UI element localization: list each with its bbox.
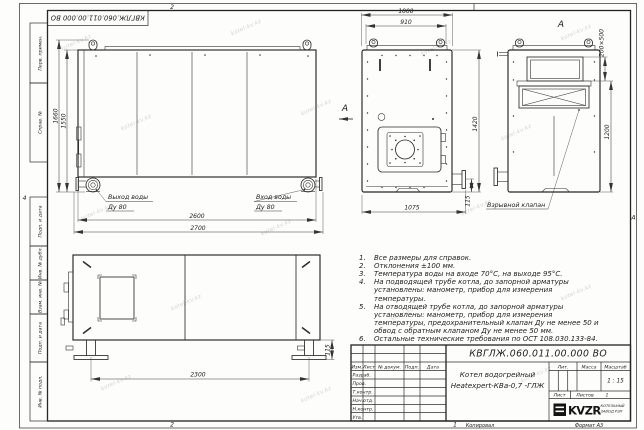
flue-opening	[527, 57, 583, 81]
view-direction-arrow-a: А	[339, 104, 353, 119]
margin-label-perv-primen: Перв. примен.	[38, 35, 44, 70]
margin-label-sprav-no: Справ. №	[38, 111, 44, 134]
dim-rear-opening: 200×500	[599, 29, 606, 57]
tb-company-line1: КОТЕЛЬНЫЙ	[601, 403, 625, 408]
burner-door	[378, 127, 446, 172]
explosion-valve	[519, 86, 589, 108]
logo-mark-icon	[554, 404, 567, 417]
note-number: 2.	[357, 262, 374, 270]
dim-rear-height: 1200	[604, 124, 611, 139]
note-item: 1. Все размеры для справок.	[357, 254, 603, 262]
callout-water-inlet: Вход воды Ду 80	[254, 189, 305, 211]
title-block: Изм. Лист № докум. Подп. Дата Разраб. Пр…	[351, 345, 631, 421]
zone-mark-bottom: 2	[170, 422, 174, 429]
explosion-valve-label: Взрывной клапан	[487, 202, 545, 209]
sheet-frame: Перв. примен. Справ. № Подп. и дата Инв.…	[20, 4, 637, 429]
tb-row-tkontr: Т.контр.	[353, 390, 373, 396]
tb-col-list: Лист	[362, 364, 375, 370]
note-number: 4.	[357, 278, 374, 302]
margin-label-inv-dubl: Инв. № дубл.	[38, 247, 44, 279]
tb-row-nkontr: Н.контр.	[353, 406, 374, 412]
dim-front-width-total: 1000	[398, 8, 413, 15]
note-text: Температура воды на входе 70°С, на выход…	[374, 270, 602, 278]
callout-water-outlet: Выход воды Ду 80	[96, 189, 153, 211]
tb-mass-label: Масса	[582, 364, 597, 370]
view-a-label: А	[557, 20, 564, 30]
margin-label-podp-data-2: Подп. и дата	[38, 322, 44, 354]
note-text: Отклонения ±100 мм.	[374, 262, 602, 270]
dim-side-height-body: 1550	[61, 113, 68, 128]
zone-mark-left: 4	[23, 195, 27, 202]
tb-sheets-value: 1	[606, 392, 609, 398]
tb-logo-text: KVZR	[568, 404, 601, 418]
tb-sheets-label: Листов	[575, 392, 594, 398]
dim-plan-support-height: 115	[325, 344, 332, 356]
company-logo: KVZR КОТЕЛЬНЫЙ ЗАВОД РЭП	[554, 403, 625, 418]
note-item: 5. На отводящей трубе котла, до запорной…	[357, 303, 603, 335]
tb-sheet-label: Лист	[553, 392, 566, 398]
view-side-elevation: 1660 1550 2600 2700 Выход воды Ду 80	[53, 40, 324, 234]
tb-row-prov: Пров.	[353, 381, 367, 387]
callout-explosion-valve: Взрывной клапан	[486, 109, 580, 209]
note-item: 6. Остальные технические требования по О…	[357, 335, 603, 343]
note-item: 2. Отклонения ±100 мм.	[357, 262, 603, 270]
tb-lit-label: Лит.	[557, 364, 569, 370]
outlet-dn-label: Ду 80	[107, 204, 127, 211]
zone-mark-right: А	[630, 215, 635, 222]
tb-product-name-line1: Котел водогрейный	[460, 370, 536, 379]
view-plan: 2300 115	[61, 255, 335, 382]
inspection-hatch	[98, 275, 136, 321]
note-text: На подводящей трубе котла, до запорной а…	[374, 278, 602, 302]
tb-col-data: Дата	[426, 364, 439, 370]
tb-row-utv: Утв.	[353, 415, 363, 421]
view-rear-a: А	[486, 20, 613, 209]
tb-row-razrab: Разраб.	[353, 373, 371, 379]
tb-company-line2: ЗАВОД РЭП	[601, 410, 623, 414]
margin-label-podp-data-1: Подп. и дата	[38, 205, 44, 237]
note-text: Все размеры для справок.	[374, 254, 602, 262]
margin-label-vzam-inv: Взам. инв. №	[38, 281, 44, 313]
dim-front-width-inner: 910	[400, 19, 412, 26]
tb-scale-value: 1 : 15	[607, 379, 624, 385]
note-number: 1.	[357, 254, 374, 262]
margin-label-inv-podl: Инв. № подл.	[38, 375, 44, 407]
dim-front-height: 1420	[472, 116, 479, 131]
tb-doc-number: КВГЛЖ.060.011.00.000 ВО	[469, 349, 607, 360]
tb-row-nachotd: Нач.отд.	[353, 398, 374, 404]
tb-scale-label: Масштаб	[604, 364, 626, 370]
zone-mark-bottom-right: 1	[453, 422, 457, 429]
dim-front-width-bottom: 1075	[404, 205, 419, 212]
note-item: 4. На подводящей трубе котла, до запорно…	[357, 278, 603, 302]
zone-mark-top: 2	[170, 4, 174, 11]
dim-side-height-total: 1660	[53, 108, 60, 123]
support-foot	[66, 340, 108, 360]
tb-col-doc: № докум.	[377, 364, 401, 370]
view-front-elevation: 1000 910	[339, 8, 481, 214]
dim-side-length-body: 2600	[189, 213, 204, 220]
tb-col-izm: Изм.	[351, 364, 362, 370]
technical-notes: 1. Все размеры для справок. 2. Отклонени…	[357, 254, 603, 343]
note-number: 5.	[357, 303, 374, 335]
note-number: 6.	[357, 335, 374, 343]
tb-product-name-line2: Heatexpert-КВа-0,7 -ГЛЖ	[451, 381, 545, 390]
note-text: Остальные технические требования по ОСТ …	[374, 335, 602, 343]
view-arrow-label: А	[341, 104, 348, 114]
dim-side-length-total: 2700	[190, 225, 205, 232]
note-number: 3.	[357, 270, 374, 278]
lifting-lug	[89, 40, 311, 50]
footer-copied-label: Копировал	[466, 423, 495, 429]
footer-format-label: Формат А3	[575, 423, 603, 429]
drawing-canvas: Перв. примен. Справ. № Подп. и дата Инв.…	[0, 0, 644, 430]
dim-plan-support-span: 2300	[190, 372, 205, 379]
tb-col-podp: Подп.	[405, 364, 419, 370]
support-foot	[292, 340, 326, 360]
note-text: На отводящей трубе котла, до запорной ар…	[374, 303, 602, 335]
outlet-label: Выход воды	[108, 194, 148, 201]
inlet-dn-label: Ду 80	[255, 204, 275, 211]
drawing-sheet: kotel-kv.kz kotel-kv.kz kotel-kv.kz kote…	[0, 0, 644, 430]
note-item: 3. Температура воды на входе 70°С, на вы…	[357, 270, 603, 278]
doc-number-rotated: КВГЛЖ.060.011.00.000 ВО	[50, 14, 145, 22]
